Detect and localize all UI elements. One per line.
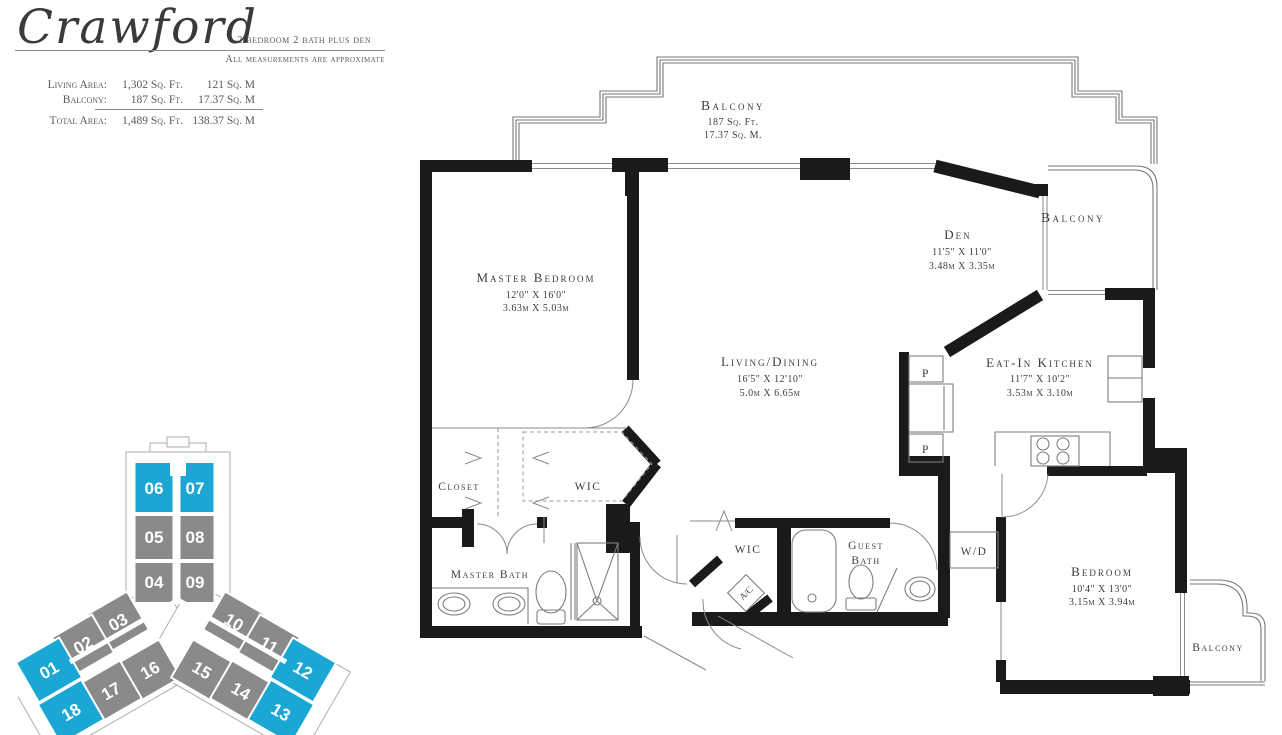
- stat-sqm: 17.37 Sq. M: [183, 93, 255, 108]
- den-dim-m: 3.48m X 3.35m: [929, 261, 995, 272]
- measurements-note: All measurements are approximate: [15, 54, 385, 65]
- floorplan-sheet: Crawford 2 bedroom 2 bath plus den All m…: [0, 0, 1282, 735]
- stat-row-balcony: Balcony: 187 Sq. Ft. 17.37 Sq. M: [15, 93, 275, 108]
- room-label-guest-bath-2: Bath: [851, 555, 880, 567]
- den-dim-ft: 11'5" X 11'0": [932, 247, 992, 258]
- balcony-railings: [513, 57, 1265, 685]
- room-label-closet: Closet: [438, 481, 480, 493]
- svg-text:09: 09: [186, 573, 205, 592]
- master-bedroom-dim-ft: 12'0" X 16'0": [506, 290, 567, 301]
- keyplan-unit-06: 06: [135, 462, 174, 513]
- stat-sqm: 138.37 Sq. M: [183, 114, 255, 129]
- room-label-wic-1: WIC: [575, 481, 602, 493]
- building-key-plan: 06 07 05 08 04 09 03 10 02 11 01 12 16 1…: [18, 428, 352, 735]
- stat-label: Living Area:: [15, 78, 107, 93]
- angled-walls: [625, 166, 1040, 670]
- room-label-washer-dryer: W/D: [961, 546, 988, 558]
- room-label-balcony-bottom: Balcony: [1192, 642, 1244, 654]
- room-label-guest-bath-1: Guest: [848, 540, 884, 552]
- balcony-sqft: 187 Sq. Ft.: [708, 117, 759, 128]
- room-label-wic-2: WIC: [735, 544, 762, 556]
- walls: [420, 158, 1190, 696]
- stat-row-living: Living Area: 1,302 Sq. Ft. 121 Sq. M: [15, 78, 275, 93]
- living-dining-dim-m: 5.0m X 6.65m: [740, 388, 801, 399]
- svg-text:05: 05: [145, 528, 164, 547]
- master-bath-fixtures: [432, 543, 618, 624]
- room-label-master-bath: Master Bath: [451, 569, 529, 581]
- room-label-living-dining: Living/Dining: [721, 354, 819, 369]
- svg-text:08: 08: [186, 528, 205, 547]
- stat-sqft: 187 Sq. Ft.: [107, 93, 183, 108]
- room-label-master-bedroom: Master Bedroom: [477, 270, 596, 285]
- bedroom-dim-m: 3.15m X 3.94m: [1069, 597, 1135, 608]
- room-label-den: Den: [944, 227, 971, 242]
- stat-sqft: 1,302 Sq. Ft.: [107, 78, 183, 93]
- stat-sqft: 1,489 Sq. Ft.: [107, 114, 183, 129]
- plan-subtitle: 2 bedroom 2 bath plus den: [237, 34, 371, 46]
- pantry-label-1: P: [922, 368, 930, 380]
- bedroom-dim-ft: 10'4" X 13'0": [1072, 584, 1133, 595]
- stat-sqm: 121 Sq. M: [183, 78, 255, 93]
- living-dining-dim-ft: 16'5" X 12'10": [737, 374, 803, 385]
- svg-text:04: 04: [145, 573, 164, 592]
- balcony-sqm: 17.37 Sq. M.: [704, 130, 762, 141]
- kitchen-dim-ft: 11'7" X 10'2": [1010, 374, 1070, 385]
- svg-text:06: 06: [145, 479, 164, 498]
- stat-label: Balcony:: [15, 93, 107, 108]
- plan-name: Crawford: [17, 0, 258, 55]
- stat-row-total: Total Area: 1,489 Sq. Ft. 138.37 Sq. M: [15, 114, 275, 129]
- room-labels: Balcony 187 Sq. Ft. 17.37 Sq. M. Balcony…: [438, 98, 1244, 654]
- svg-text:07: 07: [186, 479, 205, 498]
- stat-label: Total Area:: [15, 114, 107, 129]
- keyplan-unit-09: 09: [176, 562, 215, 603]
- room-label-balcony-right: Balcony: [1041, 210, 1105, 225]
- unit-floor-plan: Balcony 187 Sq. Ft. 17.37 Sq. M. Balcony…: [400, 40, 1282, 735]
- master-bedroom-dim-m: 3.63m X 5.03m: [503, 303, 569, 314]
- keyplan-unit-04: 04: [135, 562, 174, 603]
- room-label-balcony-top: Balcony: [701, 98, 765, 113]
- area-stats: Living Area: 1,302 Sq. Ft. 121 Sq. M Bal…: [15, 78, 275, 129]
- kitchen-dim-m: 3.53m X 3.10m: [1007, 388, 1073, 399]
- keyplan-unit-05: 05: [135, 515, 174, 560]
- room-label-bedroom: Bedroom: [1071, 564, 1133, 579]
- room-label-ac: A/C: [737, 584, 755, 602]
- pantry-label-2: P: [922, 444, 930, 456]
- room-label-eat-in-kitchen: Eat-In Kitchen: [986, 355, 1094, 370]
- header-rule: [15, 50, 385, 51]
- keyplan-unit-08: 08: [176, 515, 215, 560]
- stats-rule: [95, 109, 263, 110]
- kitchen-fixtures: [909, 356, 1142, 466]
